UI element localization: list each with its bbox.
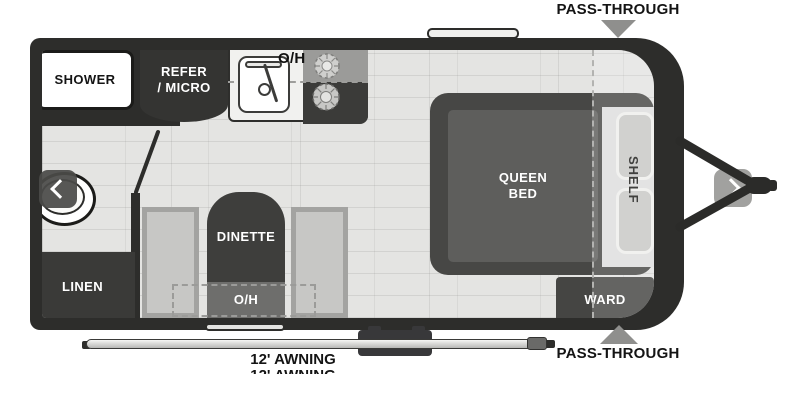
queen-bed-label: QUEEN BED [499,170,547,201]
dinette-label: DINETTE [217,229,275,245]
awning-label-clipped: 12' AWNING [243,368,343,374]
chevron-left-icon [50,179,70,199]
trailer-interior-floor: SHOWER LINEN REFER / MICRO [42,50,654,318]
dinette-overhead-dash-outline [172,284,316,317]
shower-room: SHOWER [42,50,134,110]
roadside-window [427,28,519,39]
sink-drain-icon [258,83,271,96]
stove-burner-icon [312,51,342,81]
dinette-table: DINETTE [207,192,285,282]
pass-through-label-top: PASS-THROUGH [528,1,708,18]
chevron-right-icon [721,178,741,198]
refer-label: REFER / MICRO [157,64,210,95]
previous-floorplan-button[interactable] [39,170,77,208]
awning-rail [86,339,548,349]
awning-label: 12' AWNING [243,351,343,368]
linen-cabinet: LINEN [42,252,135,318]
kitchen-overhead-label: O/H [278,50,306,67]
pass-through-arrow-top-icon [601,20,636,38]
entry-door [205,323,285,331]
step-mount-tab [412,326,425,332]
step-mount-tab [368,326,381,332]
queen-bed: QUEEN BED [448,110,598,262]
stove-burner-icon [310,81,342,113]
pass-through-label-bottom: PASS-THROUGH [528,345,708,362]
awning-end-cap-right [527,337,547,350]
floorplan-viewer: SHOWER LINEN REFER / MICRO [0,0,793,418]
hitch-ball-knob [768,180,777,191]
refrigerator-microwave: REFER / MICRO [140,50,228,122]
shower-label: SHOWER [55,72,116,88]
pass-through-storage-zone [592,50,654,318]
next-floorplan-button[interactable] [714,169,752,207]
linen-label: LINEN [62,279,103,295]
